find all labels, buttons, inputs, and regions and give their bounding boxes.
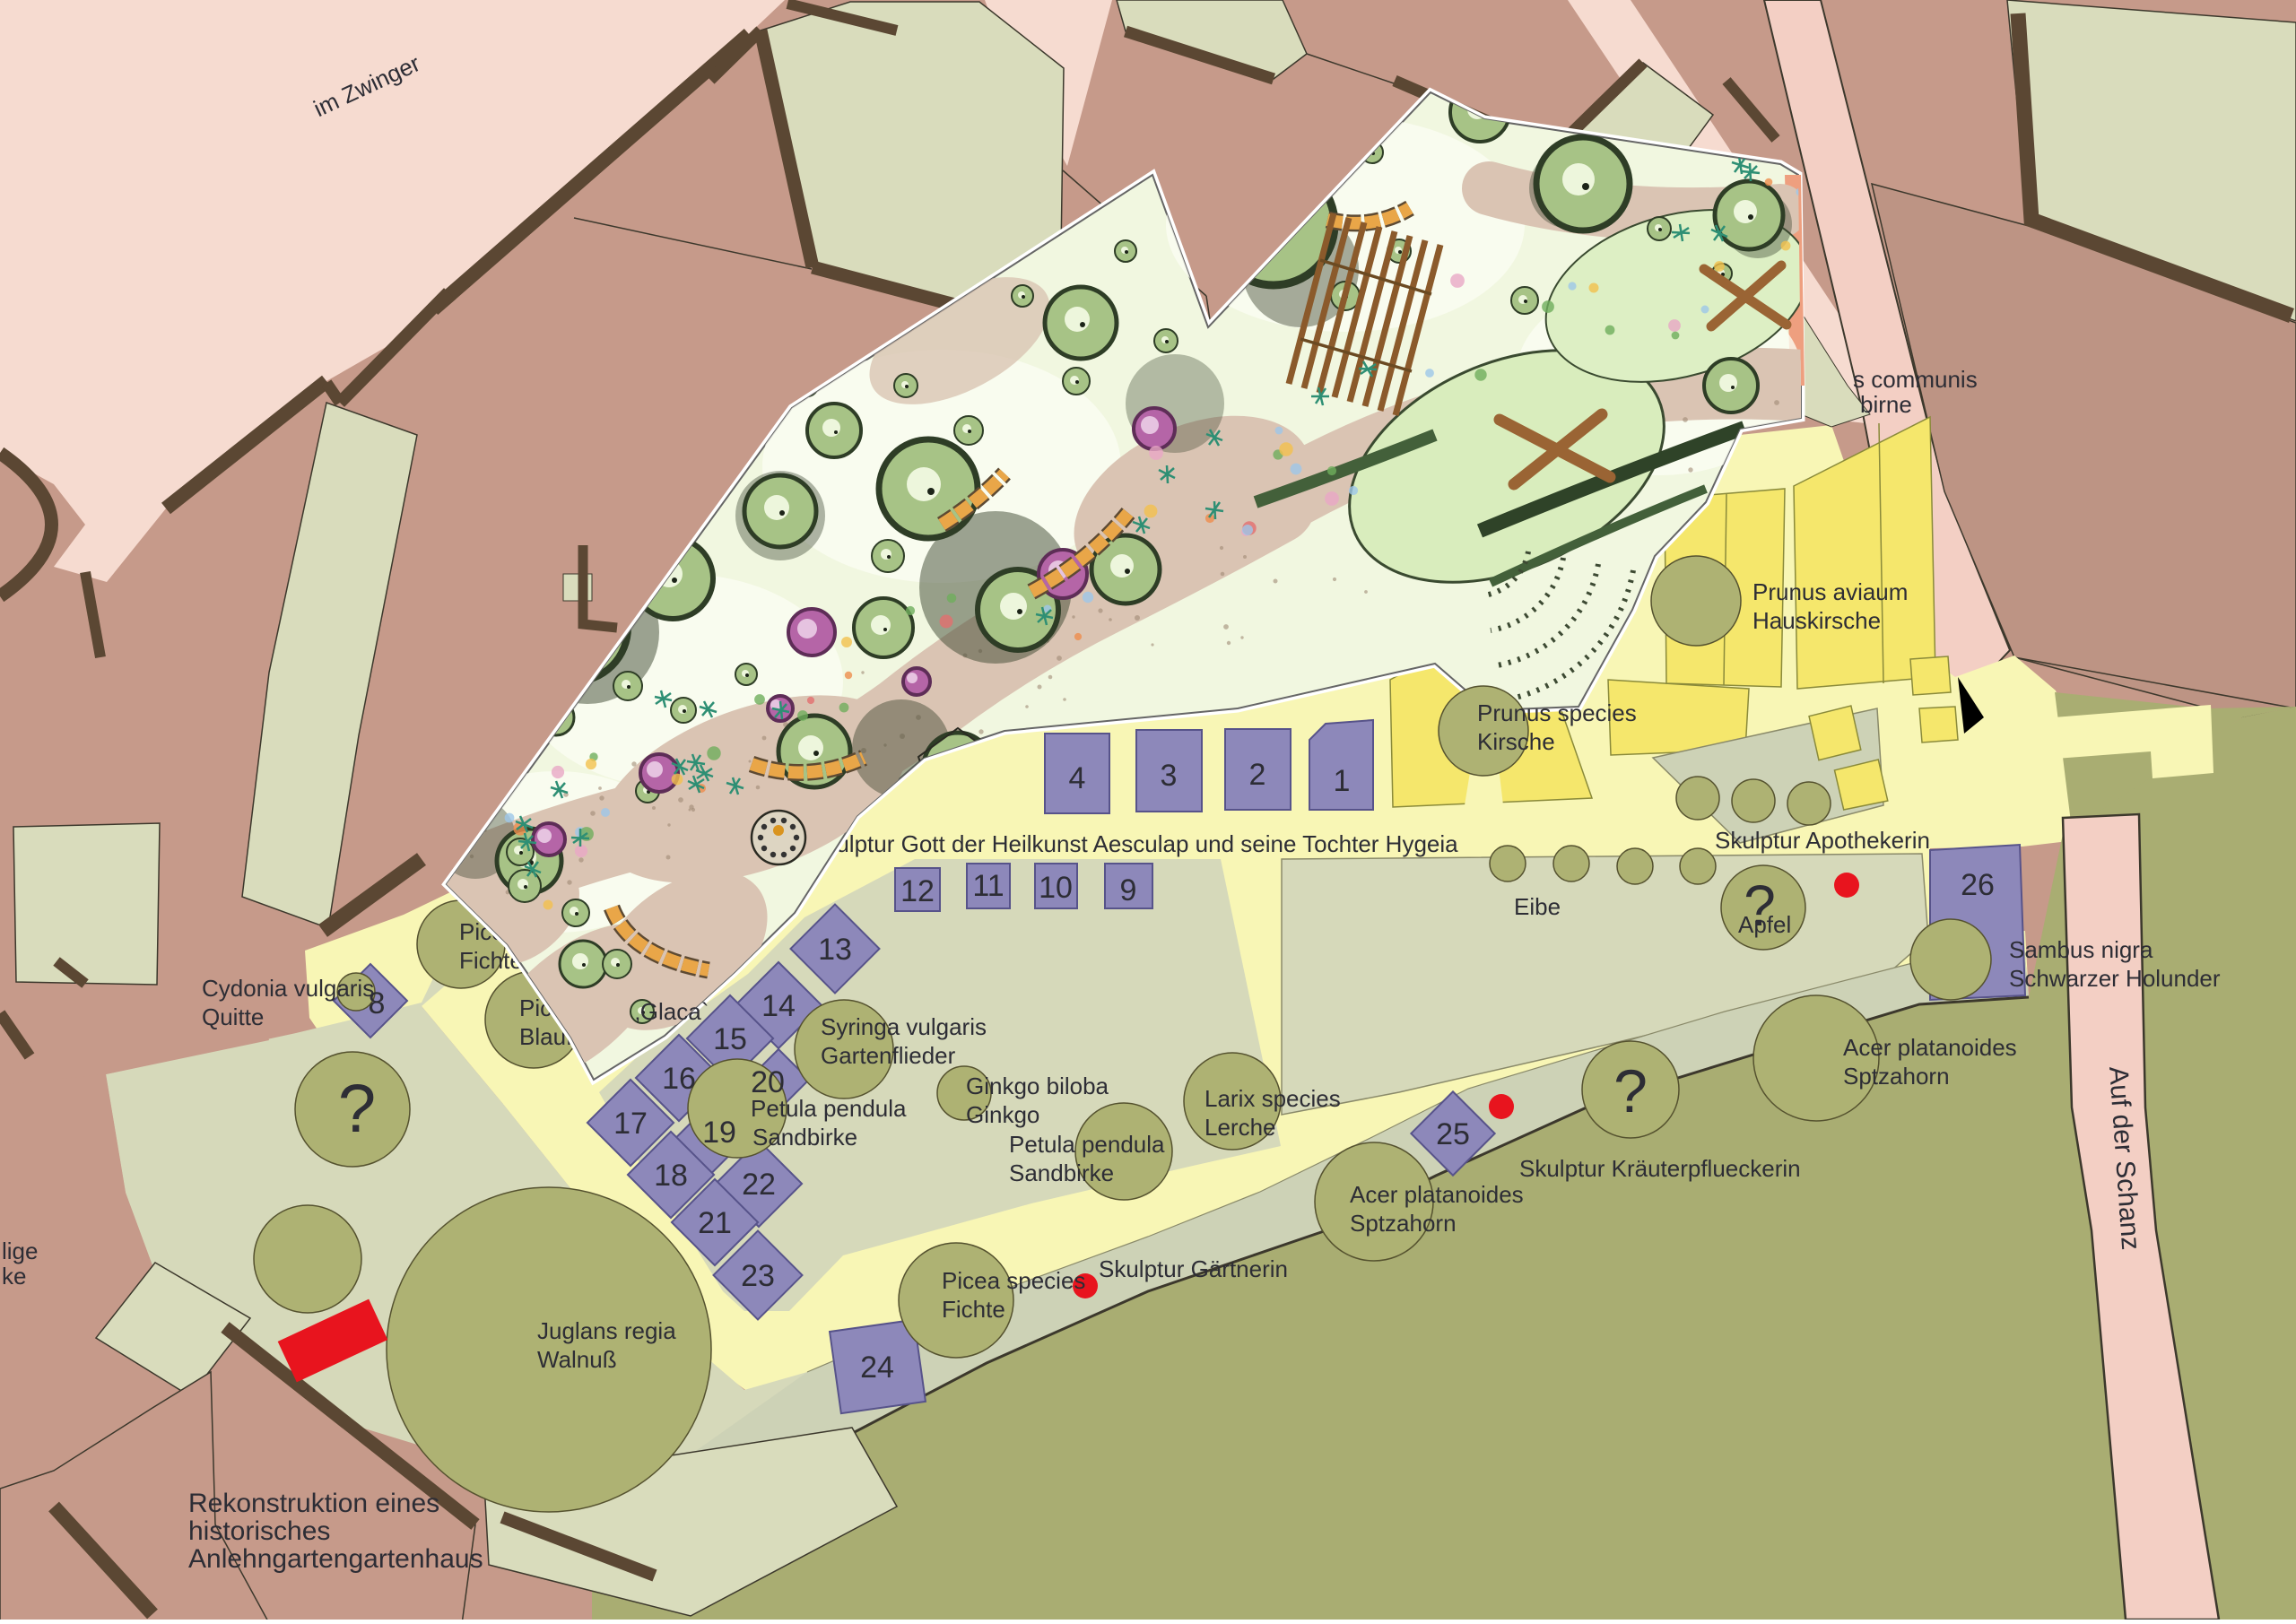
svg-text:Acer platanoides: Acer platanoides	[1843, 1034, 2017, 1061]
svg-text:Sptzahorn: Sptzahorn	[1843, 1063, 1950, 1090]
svg-text:?: ?	[1744, 873, 1776, 938]
svg-text:Skulptur Apothekerin: Skulptur Apothekerin	[1715, 827, 1930, 854]
svg-text:Eibe: Eibe	[1514, 893, 1561, 920]
svg-text:Prunus species: Prunus species	[1477, 699, 1637, 726]
svg-text:birne: birne	[1860, 391, 1912, 418]
svg-text:Anlehngartengartenhaus: Anlehngartengartenhaus	[188, 1544, 483, 1574]
svg-text:3: 3	[1161, 759, 1178, 793]
svg-text:s communis: s communis	[1853, 366, 1978, 393]
svg-text:Quitte: Quitte	[202, 1003, 264, 1030]
svg-text:2: 2	[1249, 758, 1266, 792]
svg-text:Skulptur Gott der Heilkunst Ae: Skulptur Gott der Heilkunst Aesculap und…	[809, 830, 1458, 857]
svg-text:Skulptur Gärtnerin: Skulptur Gärtnerin	[1099, 1255, 1288, 1282]
svg-text:11: 11	[972, 869, 1004, 903]
svg-text:15: 15	[713, 1022, 747, 1056]
svg-text:Ginkgo: Ginkgo	[966, 1101, 1039, 1128]
svg-text:lige: lige	[2, 1238, 38, 1264]
svg-text:13: 13	[818, 933, 852, 967]
svg-text:Gartenflieder: Gartenflieder	[821, 1042, 956, 1069]
svg-text:Prunus aviaum: Prunus aviaum	[1752, 578, 1908, 605]
svg-text:18: 18	[654, 1159, 688, 1193]
svg-text:Juglans regia: Juglans regia	[537, 1317, 676, 1344]
svg-text:22: 22	[742, 1168, 776, 1202]
svg-text:Kirsche: Kirsche	[1477, 728, 1555, 755]
svg-text:1: 1	[1334, 764, 1351, 798]
svg-text:Larix species: Larix species	[1205, 1085, 1341, 1112]
svg-text:Skulptur Kräuterpflueckerin: Skulptur Kräuterpflueckerin	[1519, 1155, 1801, 1182]
svg-text:10: 10	[1039, 871, 1073, 905]
svg-text:21: 21	[698, 1206, 732, 1240]
svg-text:19: 19	[702, 1116, 736, 1150]
svg-text:9: 9	[1120, 873, 1137, 908]
svg-text:26: 26	[1961, 868, 1995, 902]
svg-text:16: 16	[662, 1062, 696, 1096]
svg-text:12: 12	[900, 874, 935, 908]
svg-text:Sptzahorn: Sptzahorn	[1350, 1210, 1457, 1237]
svg-text:Acer platanoides: Acer platanoides	[1350, 1181, 1524, 1208]
svg-text:Petula pendula: Petula pendula	[1009, 1131, 1165, 1158]
svg-text:14: 14	[761, 989, 796, 1023]
svg-text:Ginkgo biloba: Ginkgo biloba	[966, 1073, 1109, 1099]
svg-text:Rekonstruktion eines: Rekonstruktion eines	[188, 1489, 439, 1518]
svg-text:Cydonia vulgaris: Cydonia vulgaris	[202, 975, 374, 1002]
svg-text:Lerche: Lerche	[1205, 1114, 1276, 1141]
svg-text:Fichte: Fichte	[942, 1296, 1005, 1323]
svg-text:Walnuß: Walnuß	[537, 1346, 617, 1373]
svg-text:?: ?	[338, 1071, 376, 1147]
svg-text:Petula pendula: Petula pendula	[751, 1095, 907, 1122]
svg-text:4: 4	[1069, 761, 1086, 795]
svg-text:17: 17	[613, 1107, 648, 1141]
svg-text:Sambus nigra: Sambus nigra	[2009, 936, 2153, 963]
svg-text:Schwarzer Holunder: Schwarzer Holunder	[2009, 965, 2221, 992]
svg-text:Syringa vulgaris: Syringa vulgaris	[821, 1013, 987, 1040]
svg-text:historisches: historisches	[188, 1516, 330, 1546]
svg-text:Picea species: Picea species	[942, 1267, 1085, 1294]
svg-text:23: 23	[741, 1259, 775, 1293]
svg-text:?: ?	[1613, 1057, 1648, 1125]
svg-text:ke: ke	[2, 1263, 26, 1290]
svg-text:Hauskirsche: Hauskirsche	[1752, 607, 1881, 634]
svg-text:25: 25	[1436, 1117, 1470, 1151]
svg-text:24: 24	[860, 1350, 894, 1385]
svg-text:‚Glaca`: ‚Glaca`	[635, 998, 709, 1025]
svg-text:Sandbirke: Sandbirke	[1009, 1159, 1114, 1186]
svg-text:Sandbirke: Sandbirke	[752, 1124, 857, 1151]
